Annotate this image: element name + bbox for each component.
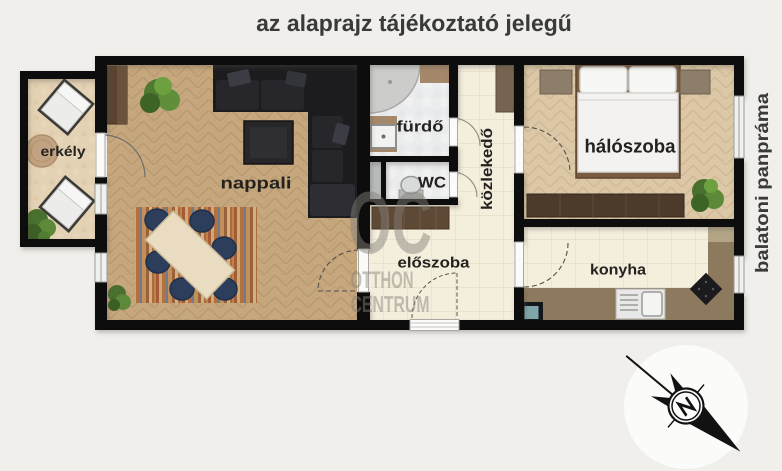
svg-text:fürdő: fürdő bbox=[397, 119, 444, 136]
svg-text:hálószoba: hálószoba bbox=[585, 137, 676, 158]
svg-text:OTTHON: OTTHON bbox=[351, 267, 414, 294]
svg-text:közlekedő: közlekedő bbox=[479, 128, 496, 210]
svg-text:balatoni panpráma: balatoni panpráma bbox=[752, 92, 772, 273]
svg-text:az alaprajz tájékoztató jelegű: az alaprajz tájékoztató jelegű bbox=[256, 10, 572, 36]
svg-text:OC: OC bbox=[348, 173, 432, 272]
svg-text:erkély: erkély bbox=[41, 143, 86, 159]
svg-text:konyha: konyha bbox=[590, 262, 647, 279]
svg-text:nappali: nappali bbox=[221, 175, 292, 193]
svg-text:CENTRUM: CENTRUM bbox=[351, 291, 430, 317]
